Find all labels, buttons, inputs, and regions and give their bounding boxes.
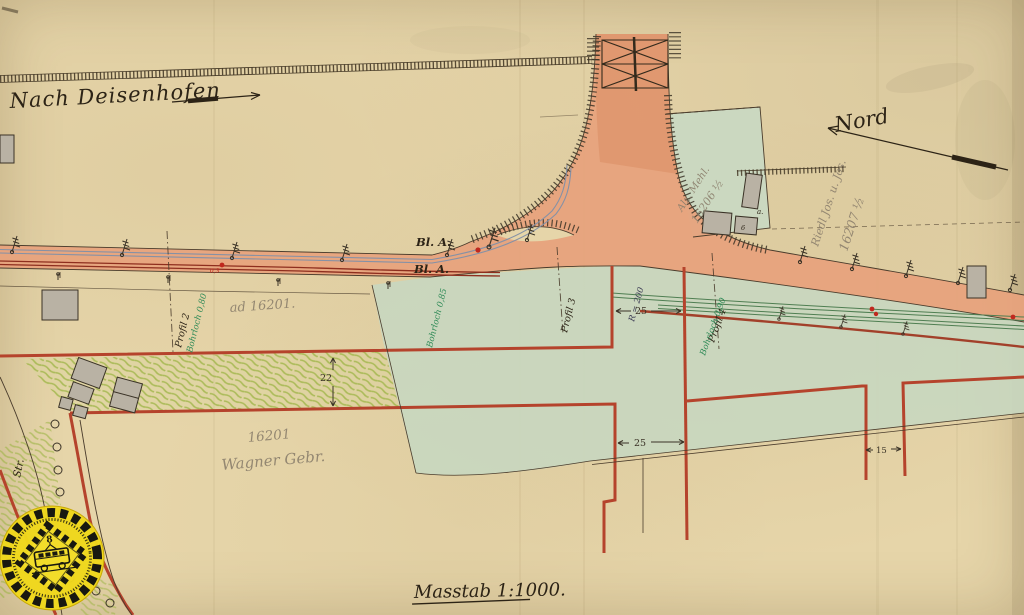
svg-text:Masstab 1:1000.: Masstab 1:1000. bbox=[413, 579, 566, 603]
signal-label-bl-a-lower: Bl. A. bbox=[413, 262, 449, 276]
dim-15-label: 15 bbox=[876, 446, 887, 456]
direction-label-deisenhofen: Nach Deisenhofen bbox=[8, 78, 221, 113]
parcel-16207-number: 16207 ½ bbox=[836, 195, 868, 253]
annotation-a-label: a. bbox=[757, 208, 763, 216]
building-number-label: 6 bbox=[741, 224, 745, 232]
map-canvas: Nach Deisenhofen Nord Bl. A. Bl. A. Prof… bbox=[0, 0, 1024, 615]
track-mark-label: 0,3 bbox=[210, 267, 220, 274]
dim-25-left-label: 25 bbox=[635, 306, 647, 317]
dim-22-label: 22 bbox=[320, 373, 332, 384]
parcel-16201-owner: Wagner Gebr. bbox=[221, 447, 326, 474]
parcel-16201-number: 16201 bbox=[247, 426, 291, 446]
north-label: Nord bbox=[832, 104, 891, 137]
scale-caption: Masstab 1:1000. bbox=[412, 579, 566, 604]
dim-25-mid-label: 25 bbox=[634, 438, 646, 449]
signal-label-bl-a-upper: Bl. A. bbox=[415, 235, 451, 249]
plan-drawing: Nach Deisenhofen Nord Bl. A. Bl. A. Prof… bbox=[0, 0, 1024, 615]
parcel-ad16201-label: ad 16201. bbox=[229, 296, 296, 316]
